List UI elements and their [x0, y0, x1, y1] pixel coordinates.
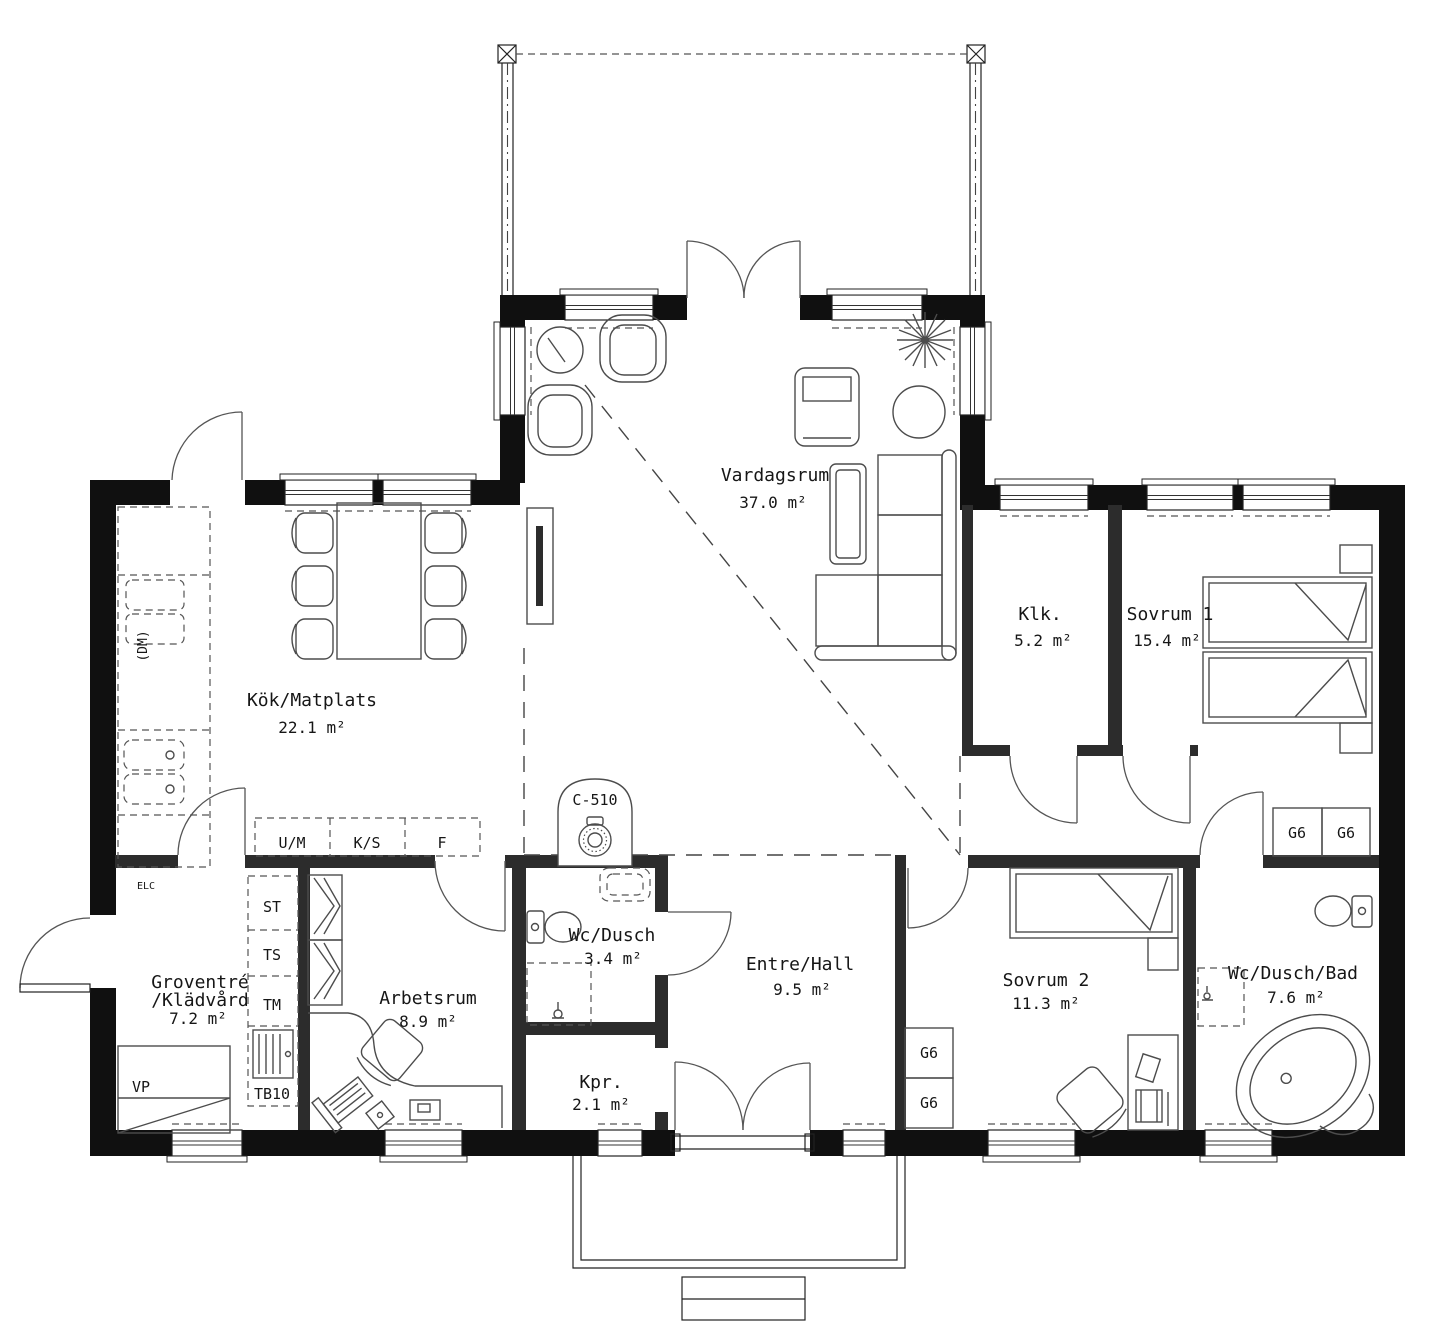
wc-dusch-fixtures — [527, 868, 650, 1025]
laundry-column: ST TS TM TB10 — [248, 876, 298, 1106]
vp-label: VP — [132, 1078, 150, 1096]
entrance-double-door — [671, 1062, 814, 1151]
bed — [1010, 868, 1178, 938]
window — [1142, 479, 1238, 516]
room-label-klk: Klk. — [1018, 604, 1061, 625]
desk — [1128, 1035, 1178, 1130]
tall-cabinets-row: U/M K/S F — [255, 818, 480, 856]
room-label-kpr: Kpr. — [579, 1072, 622, 1093]
round-side-table — [537, 327, 583, 373]
round-table — [893, 386, 945, 438]
room-area-kok: 22.1 m² — [278, 718, 345, 737]
room-label-sovrum2: Sovrum 2 — [1003, 970, 1090, 991]
cabinet-um-label: U/M — [278, 834, 305, 852]
sovrum1-door — [1123, 756, 1190, 823]
sovrum2-door — [908, 868, 968, 928]
room-label-kladvard: /Klädvård — [151, 990, 249, 1011]
room-area-vardagsrum: 37.0 m² — [739, 493, 806, 512]
room-label-sovrum1: Sovrum 1 — [1127, 604, 1214, 625]
window — [983, 1124, 1080, 1162]
dining-chairs — [292, 513, 466, 659]
room-label-wc-dusch: Wc/Dusch — [569, 925, 656, 946]
fireplace-label: C-510 — [572, 791, 617, 809]
st-label: ST — [263, 898, 281, 916]
room-label-vardagsrum: Vardagsrum — [721, 465, 829, 486]
groventre-exterior-door — [20, 918, 90, 992]
entrance-porch — [573, 1156, 905, 1320]
window — [954, 322, 991, 420]
sink — [124, 740, 184, 804]
window — [167, 1124, 247, 1162]
window — [843, 1124, 885, 1156]
window — [380, 1124, 467, 1162]
dishwasher-label: (DM) — [136, 630, 151, 661]
wardrobe-g6-label: G6 — [920, 1094, 938, 1112]
monitor — [410, 1100, 440, 1120]
room-area-groventre: 7.2 m² — [169, 1009, 227, 1028]
room-area-entre-hall: 9.5 m² — [773, 980, 831, 999]
room-label-kok: Kök/Matplats — [247, 690, 377, 711]
elc-label: ELC — [137, 881, 155, 892]
living-room-furniture — [527, 312, 956, 660]
bed — [1203, 652, 1372, 723]
terrace-french-doors — [687, 241, 800, 298]
cabinet-ks-label: K/S — [353, 834, 380, 852]
dining-set — [292, 503, 466, 659]
wc-dusch-door — [668, 912, 731, 975]
room-labels: Vardagsrum 37.0 m² Kök/Matplats 22.1 m² … — [151, 465, 1358, 1114]
hall-wardrobes: G6 G6 — [1273, 808, 1370, 856]
wardrobes: G6 G6 — [905, 1028, 953, 1128]
window — [560, 289, 658, 328]
armchair — [795, 368, 859, 446]
room-area-arbetsrum: 8.9 m² — [399, 1012, 457, 1031]
washbasin — [600, 868, 650, 901]
shower — [527, 963, 591, 1025]
window — [378, 474, 476, 511]
desk-equipment — [312, 1071, 440, 1133]
tv-bench — [527, 508, 553, 624]
wardrobe-g6-label: G6 — [1288, 824, 1306, 842]
tm-label: TM — [263, 996, 281, 1014]
cooktop — [126, 580, 184, 644]
ts-label: TS — [263, 946, 281, 964]
room-label-bad: Wc/Dusch/Bad — [1228, 963, 1358, 984]
nightstand — [1148, 938, 1178, 970]
lounge-chair — [830, 464, 866, 564]
klk-door — [1010, 756, 1077, 823]
room-area-sovrum2: 11.3 m² — [1012, 994, 1079, 1013]
room-label-arbetsrum: Arbetsrum — [379, 988, 477, 1009]
room-label-entre-hall: Entre/Hall — [746, 954, 854, 975]
room-area-bad: 7.6 m² — [1267, 988, 1325, 1007]
window — [494, 322, 531, 420]
window — [995, 479, 1093, 516]
window — [280, 474, 378, 511]
tb10-label: TB10 — [254, 1085, 290, 1103]
nightstand — [1340, 723, 1372, 753]
kitchen-fixtures: (DM) U/M K/S F — [118, 507, 480, 867]
window — [827, 289, 927, 328]
heat-pump: VP — [118, 1046, 230, 1133]
bathtub-shell — [1320, 1094, 1373, 1135]
wardrobe-g6-label: G6 — [1337, 824, 1355, 842]
window — [1200, 1124, 1277, 1162]
armchair — [528, 385, 592, 455]
arbetsrum-door — [435, 861, 505, 931]
plant — [897, 312, 953, 368]
window — [1238, 479, 1335, 516]
kitchen-exterior-door — [172, 412, 242, 480]
armchair — [600, 315, 666, 382]
room-area-klk: 5.2 m² — [1014, 631, 1072, 650]
tb10-hatch — [253, 1030, 293, 1078]
floorplan-page: C-510 (DM) U/M K/S F — [0, 0, 1447, 1344]
bathroom-fixtures — [1198, 896, 1394, 1163]
toilet — [1315, 896, 1372, 927]
wardrobe-g6-label: G6 — [920, 1044, 938, 1062]
fireplace: C-510 — [558, 779, 632, 866]
terrace-outline — [498, 45, 985, 295]
bathroom-door — [1200, 792, 1263, 855]
room-area-kpr: 2.1 m² — [572, 1095, 630, 1114]
window — [598, 1124, 642, 1156]
floorplan-drawing: C-510 (DM) U/M K/S F — [0, 0, 1447, 1344]
bed — [1203, 577, 1372, 648]
bedroom1-furniture — [1203, 545, 1372, 753]
groventre-kitchen-door — [178, 788, 245, 855]
room-area-wc-dusch: 3.4 m² — [584, 949, 642, 968]
room-area-sovrum1: 15.4 m² — [1133, 631, 1200, 650]
nightstand — [1340, 545, 1372, 573]
shelving-unit — [308, 875, 342, 1005]
cabinet-f-label: F — [437, 834, 446, 852]
